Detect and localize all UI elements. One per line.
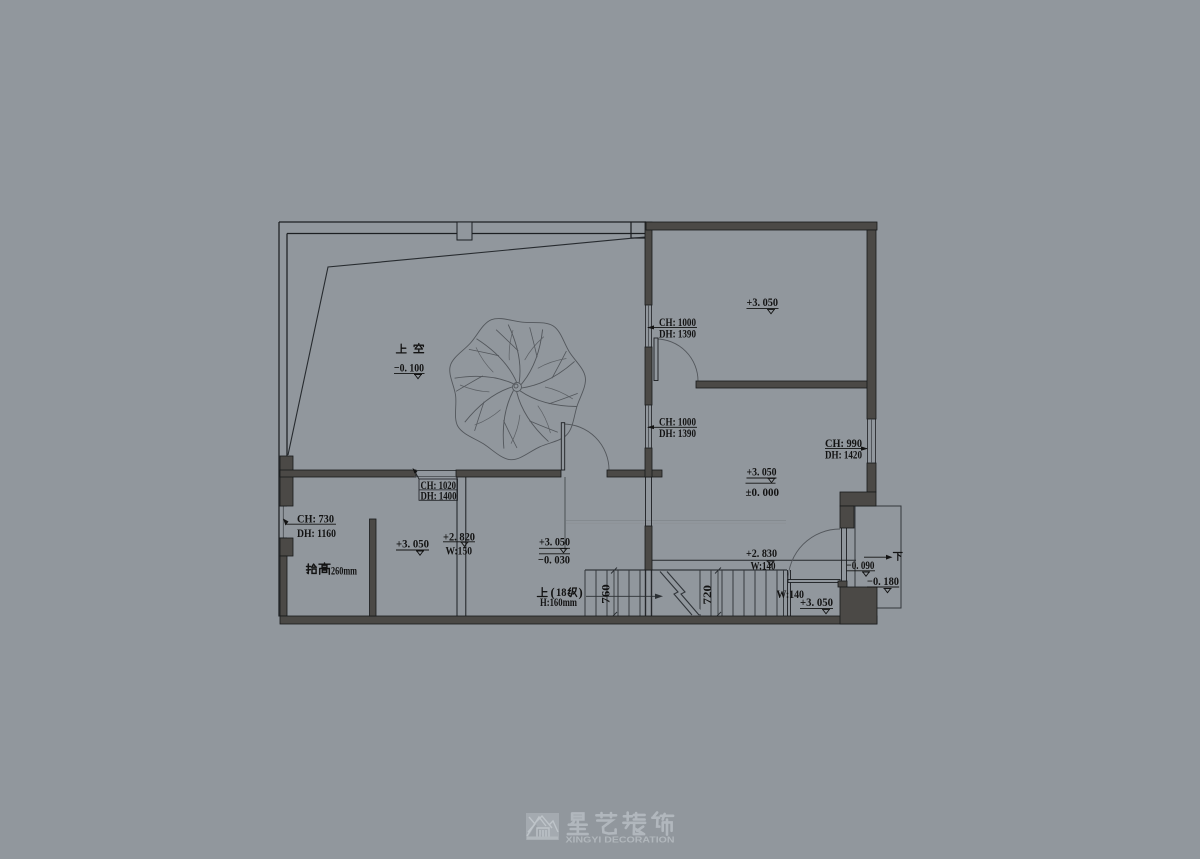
svg-text:DH: 1390: DH: 1390 bbox=[659, 426, 696, 440]
svg-text:+2. 820: +2. 820 bbox=[443, 529, 475, 543]
svg-text:+3. 050: +3. 050 bbox=[747, 465, 777, 479]
svg-text:760: 760 bbox=[601, 584, 613, 604]
svg-text:DH: 1390: DH: 1390 bbox=[659, 326, 696, 340]
svg-text:CH: 730: CH: 730 bbox=[297, 511, 334, 525]
svg-text:H:160mm: H:160mm bbox=[540, 595, 577, 609]
svg-text:±0. 000: ±0. 000 bbox=[746, 485, 780, 499]
svg-text:DH: 1160: DH: 1160 bbox=[297, 526, 336, 540]
svg-text:): ) bbox=[579, 586, 583, 600]
svg-text:+3. 050: +3. 050 bbox=[539, 535, 570, 549]
svg-text:+3. 050: +3. 050 bbox=[747, 295, 779, 309]
svg-text:−0. 100: −0. 100 bbox=[394, 360, 424, 374]
svg-text:−0. 090: −0. 090 bbox=[847, 558, 875, 572]
svg-text:−0. 180: −0. 180 bbox=[867, 574, 899, 588]
svg-text:W:150: W:150 bbox=[446, 544, 473, 558]
svg-text:DH: 1420: DH: 1420 bbox=[825, 448, 862, 462]
svg-text:260mm: 260mm bbox=[331, 563, 357, 577]
svg-text:−0. 030: −0. 030 bbox=[538, 553, 570, 567]
svg-text:+3. 050: +3. 050 bbox=[800, 595, 833, 609]
svg-text:+3. 050: +3. 050 bbox=[396, 537, 429, 551]
svg-text:W:140: W:140 bbox=[751, 559, 776, 573]
svg-text:XINGYI DECORATION: XINGYI DECORATION bbox=[566, 836, 675, 845]
svg-text:720: 720 bbox=[702, 585, 714, 605]
svg-text:DH: 1400: DH: 1400 bbox=[421, 488, 457, 502]
